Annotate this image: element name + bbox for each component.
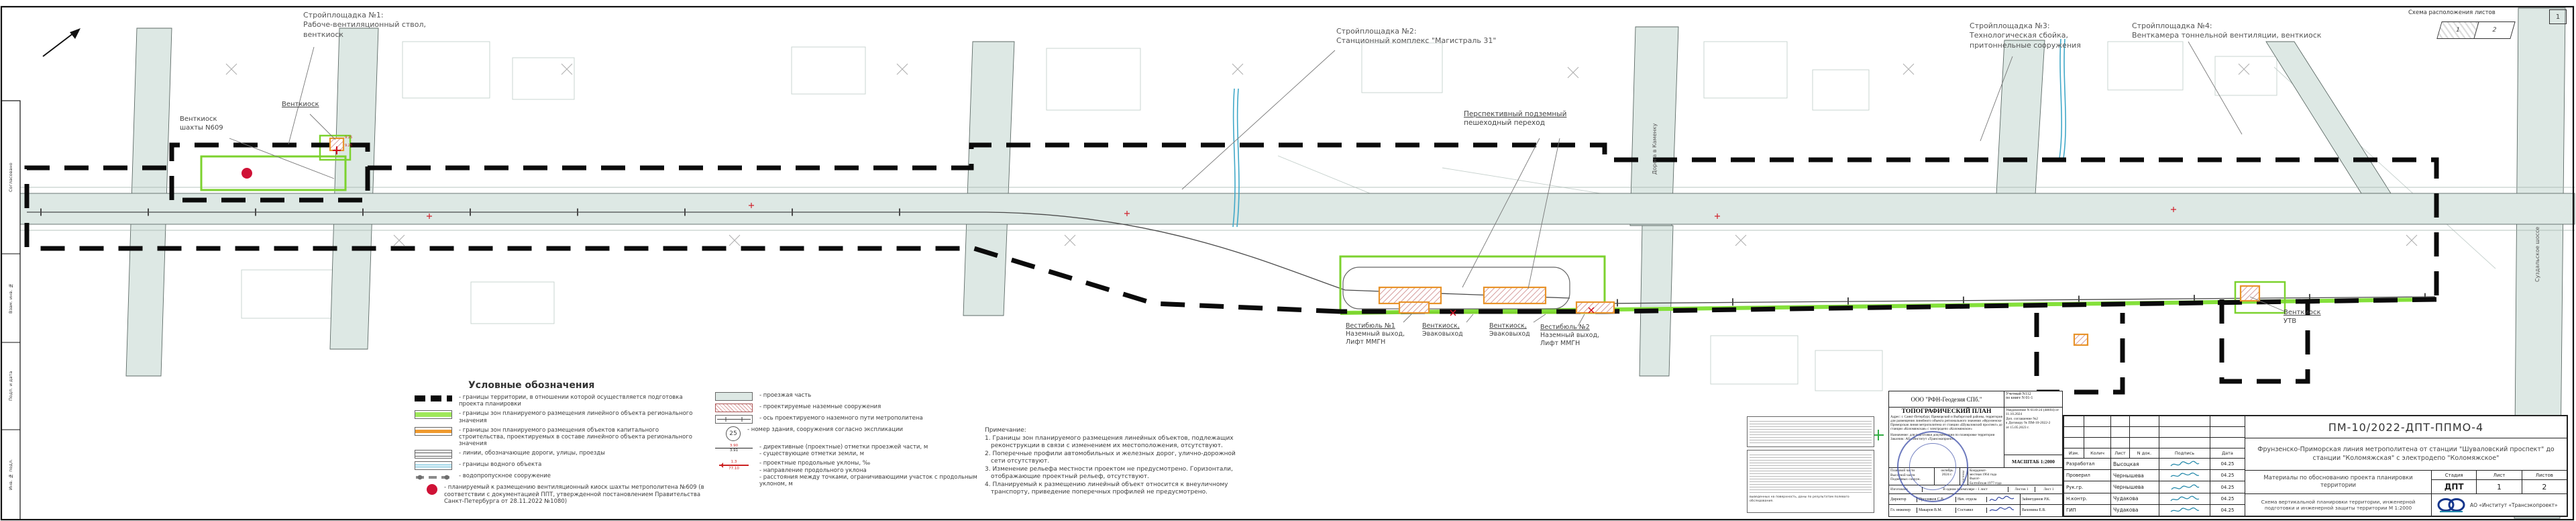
sheet-value: 1 (2477, 480, 2522, 493)
legend-building-number-icon: 25 (726, 426, 741, 441)
geo-org: ООО "РФН-Геодезия СПб." (1889, 391, 2004, 407)
sheet-scheme-diagram: 1 2 (2436, 21, 2515, 39)
label-vestibule-2: Вестибюль №2 Наземный выход, Лифт ММГН (1540, 324, 1599, 348)
legend-left-column: Условные обозначения - границы территори… (415, 380, 704, 508)
label-street-kamenka: Дорога в Каменку (1652, 67, 1658, 175)
sig-row: Н.контр.Чудакова04.25 (2064, 493, 2245, 505)
geo-account: Учетный N112 по книге N 01-1 (2004, 391, 2062, 407)
signature (1987, 505, 2021, 516)
geo-address: Адрес: г. Санкт-Петербург, Приморский и … (1890, 415, 2002, 432)
corner-sheet-number: 1 (2549, 9, 2567, 24)
legend-swatch-green-zone (415, 410, 452, 419)
legend-swatch-capital-zone (415, 427, 452, 436)
fine-print-tail: выведенных на поверхность, даны по резул… (1750, 495, 1872, 503)
signature (2159, 493, 2210, 504)
legend-axis-icon (715, 415, 753, 424)
label-street-suzdal: Суздальское шоссе (2534, 161, 2540, 282)
sig-row: ГИПЧудакова04.25 (2064, 505, 2245, 516)
label-kiosk-evac-1: Венткиоск, Эваковыход (1422, 322, 1463, 338)
materials-label: Материалы по обоснованию проекта планиро… (2245, 471, 2432, 493)
ppt-boundary (27, 145, 2436, 392)
vent-kiosk-609-marker (241, 168, 252, 179)
legend-swatch-boundary (415, 395, 452, 401)
label-kiosk-609: Венткиоск шахты N609 (180, 115, 223, 133)
signature (1987, 494, 2021, 505)
scheme-cell-1: 1 (2438, 22, 2479, 38)
round-seal-stamp (1897, 431, 1968, 502)
signature-rows: РазработалВысоцкая04.25 ПроверилЧернышев… (2064, 459, 2245, 516)
stage-table: Стадия Лист Листов ДПТ 1 2 (2432, 471, 2567, 493)
org-name: АО «Институт «Трансэкопроект» (2470, 502, 2558, 508)
fine-print-box-2: выведенных на поверхность, даны по резул… (1747, 450, 1874, 513)
legend-swatch-roads (415, 450, 452, 459)
legend-swatch-vent-kiosk (427, 484, 437, 495)
revision-empty-grid (2064, 416, 2245, 448)
sig-row: РазработалВысоцкая04.25 (2064, 459, 2245, 470)
geo-notification: Уведомление N 6110-24 (48694) от 11.10.2… (2004, 408, 2062, 455)
revision-header-row: Изм. Колич Лист N док. Подпись Дата (2064, 448, 2245, 459)
legend-right-column: - проезжая часть - проектируемые наземны… (715, 392, 983, 508)
fine-print-box-1 (1747, 416, 1874, 447)
callout-site2: Стройплощадка №2: Станционный комплекс "… (1336, 27, 1496, 46)
document-code: ПМ-10/2022-ДПТ-ППМО-4 (2245, 416, 2567, 438)
callout-site4: Стройплощадка №4: Венткамера тоннельной … (2132, 21, 2321, 41)
illegible-text (1750, 419, 1872, 444)
project-name: Фрунзенско-Приморская линия метрополитен… (2245, 438, 2567, 471)
sheets-value: 2 (2522, 480, 2567, 493)
title-block: Изм. Колич Лист N док. Подпись Дата Разр… (2063, 415, 2568, 517)
label-elevation: 9.25 (345, 136, 352, 140)
sig-row: Рук.гр.Чернышева04.25 (2064, 481, 2245, 493)
note-item: 1. Границы зон планируемого размещения л… (985, 435, 1252, 451)
strip-cell: Инв. № подл. (1, 430, 20, 520)
sig-row: ПроверилЧернышева04.25 (2064, 470, 2245, 481)
transecoproject-logo-icon (2436, 496, 2467, 514)
title-block-revision-table: Изм. Колич Лист N док. Подпись Дата Разр… (2064, 416, 2245, 516)
signature (2159, 481, 2210, 492)
sheet-scheme-title: Схема расположения листов (2408, 9, 2495, 16)
legend-swatch-surface-structures (715, 404, 753, 412)
label-elevation: 9.25 (345, 144, 352, 148)
legend-slope-icon: 1.3 77.10 (715, 460, 753, 471)
scheme-cell-2: 2 (2474, 22, 2514, 38)
strip-cell: Согласовано (1, 101, 20, 254)
stage-value: ДПТ (2432, 480, 2477, 493)
geo-sheet: Лист 1 (2035, 487, 2062, 492)
strip-cell: Подп. и дата (1, 342, 20, 430)
title-block-right: ПМ-10/2022-ДПТ-ППМО-4 Фрунзенско-Приморс… (2245, 416, 2567, 516)
geo-doc-type: ТОПОГРАФИЧЕСКИЙ ПЛАН (1890, 408, 2002, 415)
legend-title: Условные обозначения (468, 380, 704, 391)
legend-marks-icon: 3.90 3.91 (715, 444, 753, 453)
illegible-text (1750, 453, 1872, 494)
metro-axis (27, 212, 2435, 303)
callout-site3: Стройплощадка №3: Технологическая сбойка… (1970, 21, 2081, 50)
drawing-sheet: Согласовано Взам. инв. № Подп. и дата Ин… (0, 0, 2576, 521)
strip-label: Взам. инв. № (1, 254, 20, 342)
label-kiosk-left: Венткиоск (282, 101, 319, 109)
signature (2159, 470, 2210, 481)
label-kiosk-utv: Венткиоск УТВ (2284, 309, 2321, 326)
note-item: 3. Изменение рельефа местности проектом … (985, 466, 1252, 481)
note-item: 2. Поперечные профили автомобильных и же… (985, 451, 1252, 466)
legend-culvert-icon (415, 473, 452, 481)
strip-label: Инв. № подл. (1, 430, 20, 520)
notes-title: Примечание: (985, 427, 1252, 435)
note-item: 4. Планируемый к размещению линейный объ… (985, 481, 1252, 497)
legend: Условные обозначения - границы территори… (415, 380, 1005, 508)
signature (2159, 459, 2210, 469)
geo-sheets: Листов 1 (2008, 487, 2035, 492)
label-ped-crossing: Перспективный подземный пешеходный перех… (1464, 110, 1566, 128)
strip-label: Подп. и дата (1, 342, 20, 430)
legend-swatch-water (415, 461, 452, 470)
leader-lines (229, 42, 2285, 326)
notes-block: Примечание: 1. Границы зон планируемого … (985, 427, 1252, 497)
strip-cell: Взам. инв. № (1, 254, 20, 342)
label-vestibule-1: Вестибюль №1 Наземный выход, Лифт ММГН (1346, 322, 1405, 346)
strip-label: Согласовано (1, 101, 20, 254)
sheet-subtitle: Схема вертикальной планировки территории… (2245, 494, 2432, 516)
north-arrow-icon (43, 28, 80, 56)
legend-swatch-carriageway (715, 392, 753, 401)
callout-site1: Стройплощадка №1: Рабоче-вентиляционный … (303, 11, 426, 40)
geo-coords: Координат- местная 1964 года Высот- Балт… (1968, 468, 2062, 485)
signature (2159, 505, 2210, 516)
label-kiosk-evac-2: Венткиоск, Эваковыход (1489, 322, 1530, 338)
geo-scale: МАСШТАБ 1:2000 (2004, 455, 2062, 467)
